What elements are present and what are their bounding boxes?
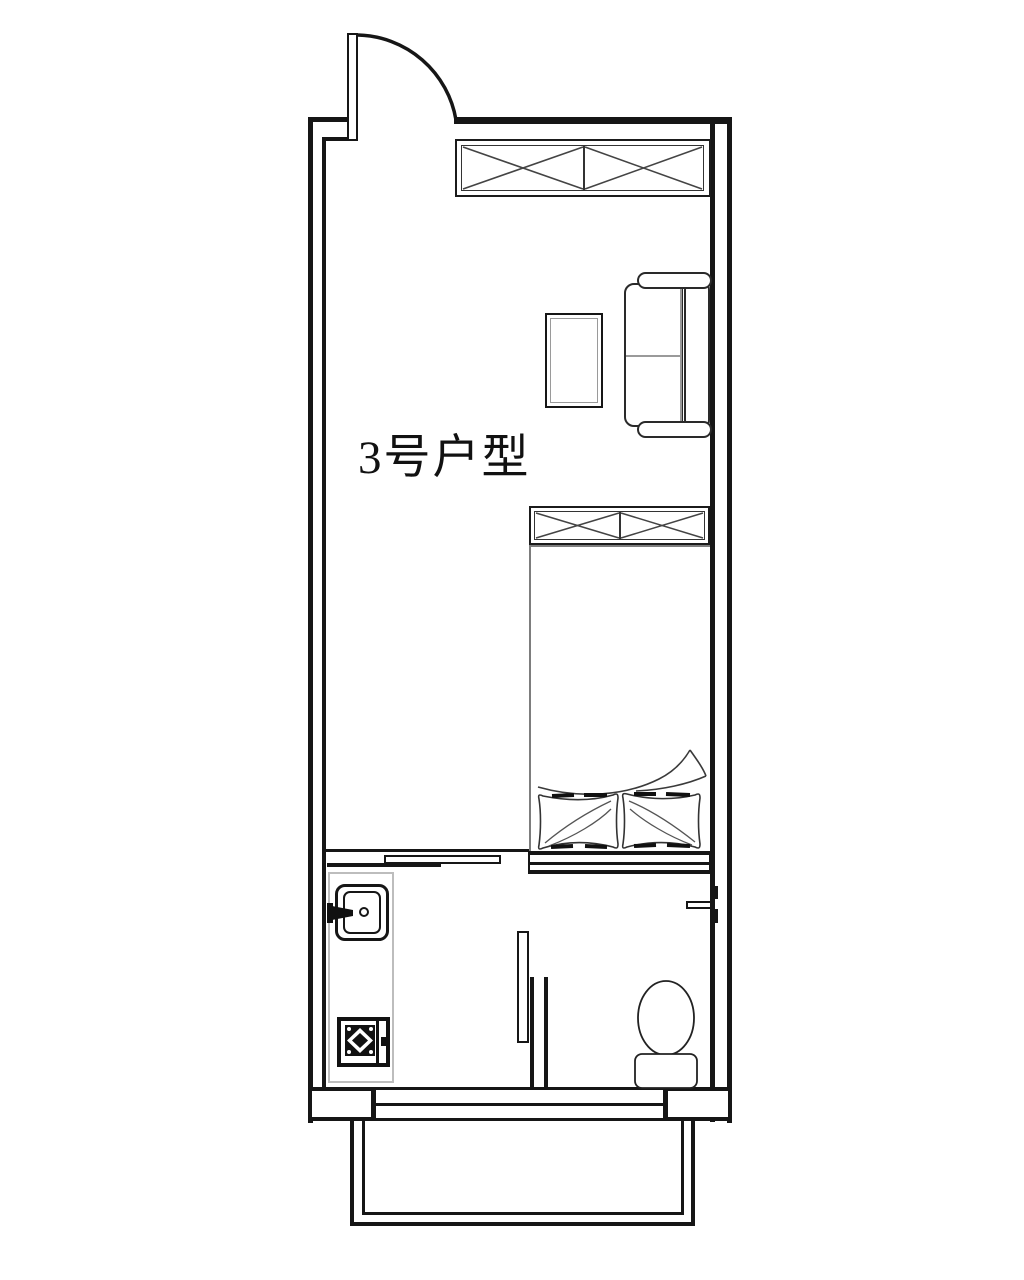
entry-door-swing-arc-icon bbox=[358, 35, 456, 120]
sofa-armrest-bottom-icon bbox=[637, 421, 712, 438]
balcony-window-icon bbox=[373, 1087, 666, 1121]
unit-type-label: 3号户型 bbox=[358, 418, 578, 487]
entry-door-leaf-icon bbox=[347, 33, 358, 141]
wall-right-inner bbox=[710, 122, 715, 1122]
bed-headboard-icon bbox=[528, 851, 711, 874]
bathroom-door-hinge-mark-2 bbox=[710, 909, 718, 923]
wall-bottom-right-block bbox=[664, 1087, 732, 1121]
sofa-back-edge bbox=[680, 286, 682, 425]
wall-left-outer bbox=[308, 117, 313, 1123]
sofa-backrest-icon bbox=[684, 278, 710, 432]
bathroom-door-hinge-mark-1 bbox=[710, 886, 718, 899]
wall-left-inner bbox=[322, 138, 326, 1088]
wall-right-outer bbox=[727, 117, 732, 1123]
floor-plan: 3号户型 bbox=[0, 0, 1024, 1280]
sliding-door-panel-2-icon bbox=[327, 863, 441, 867]
gas-stove-panel-divider bbox=[376, 1021, 379, 1063]
sofa-seat-divider bbox=[626, 355, 682, 357]
sink-drain-icon bbox=[359, 907, 369, 917]
shower-partition-icon bbox=[517, 931, 529, 1043]
balcony-inner-rail bbox=[362, 1121, 684, 1215]
sofa-armrest-top-icon bbox=[637, 272, 712, 289]
wall-top-left-outer bbox=[308, 117, 349, 122]
gas-stove-knob-icon bbox=[381, 1037, 388, 1046]
bathroom-door-handle-icon bbox=[686, 901, 712, 909]
wardrobe-bed-divider bbox=[619, 511, 621, 540]
shower-wall-stub bbox=[530, 977, 548, 1088]
wall-top-right bbox=[454, 117, 732, 124]
wall-bottom-left-block bbox=[308, 1087, 375, 1121]
bed-icon bbox=[529, 545, 710, 851]
toilet-icon bbox=[635, 981, 697, 1088]
partition-wall bbox=[325, 849, 530, 852]
coffee-table-inner bbox=[550, 318, 598, 403]
wall-top-left-inner bbox=[322, 137, 348, 141]
wardrobe-top-divider bbox=[583, 145, 585, 191]
